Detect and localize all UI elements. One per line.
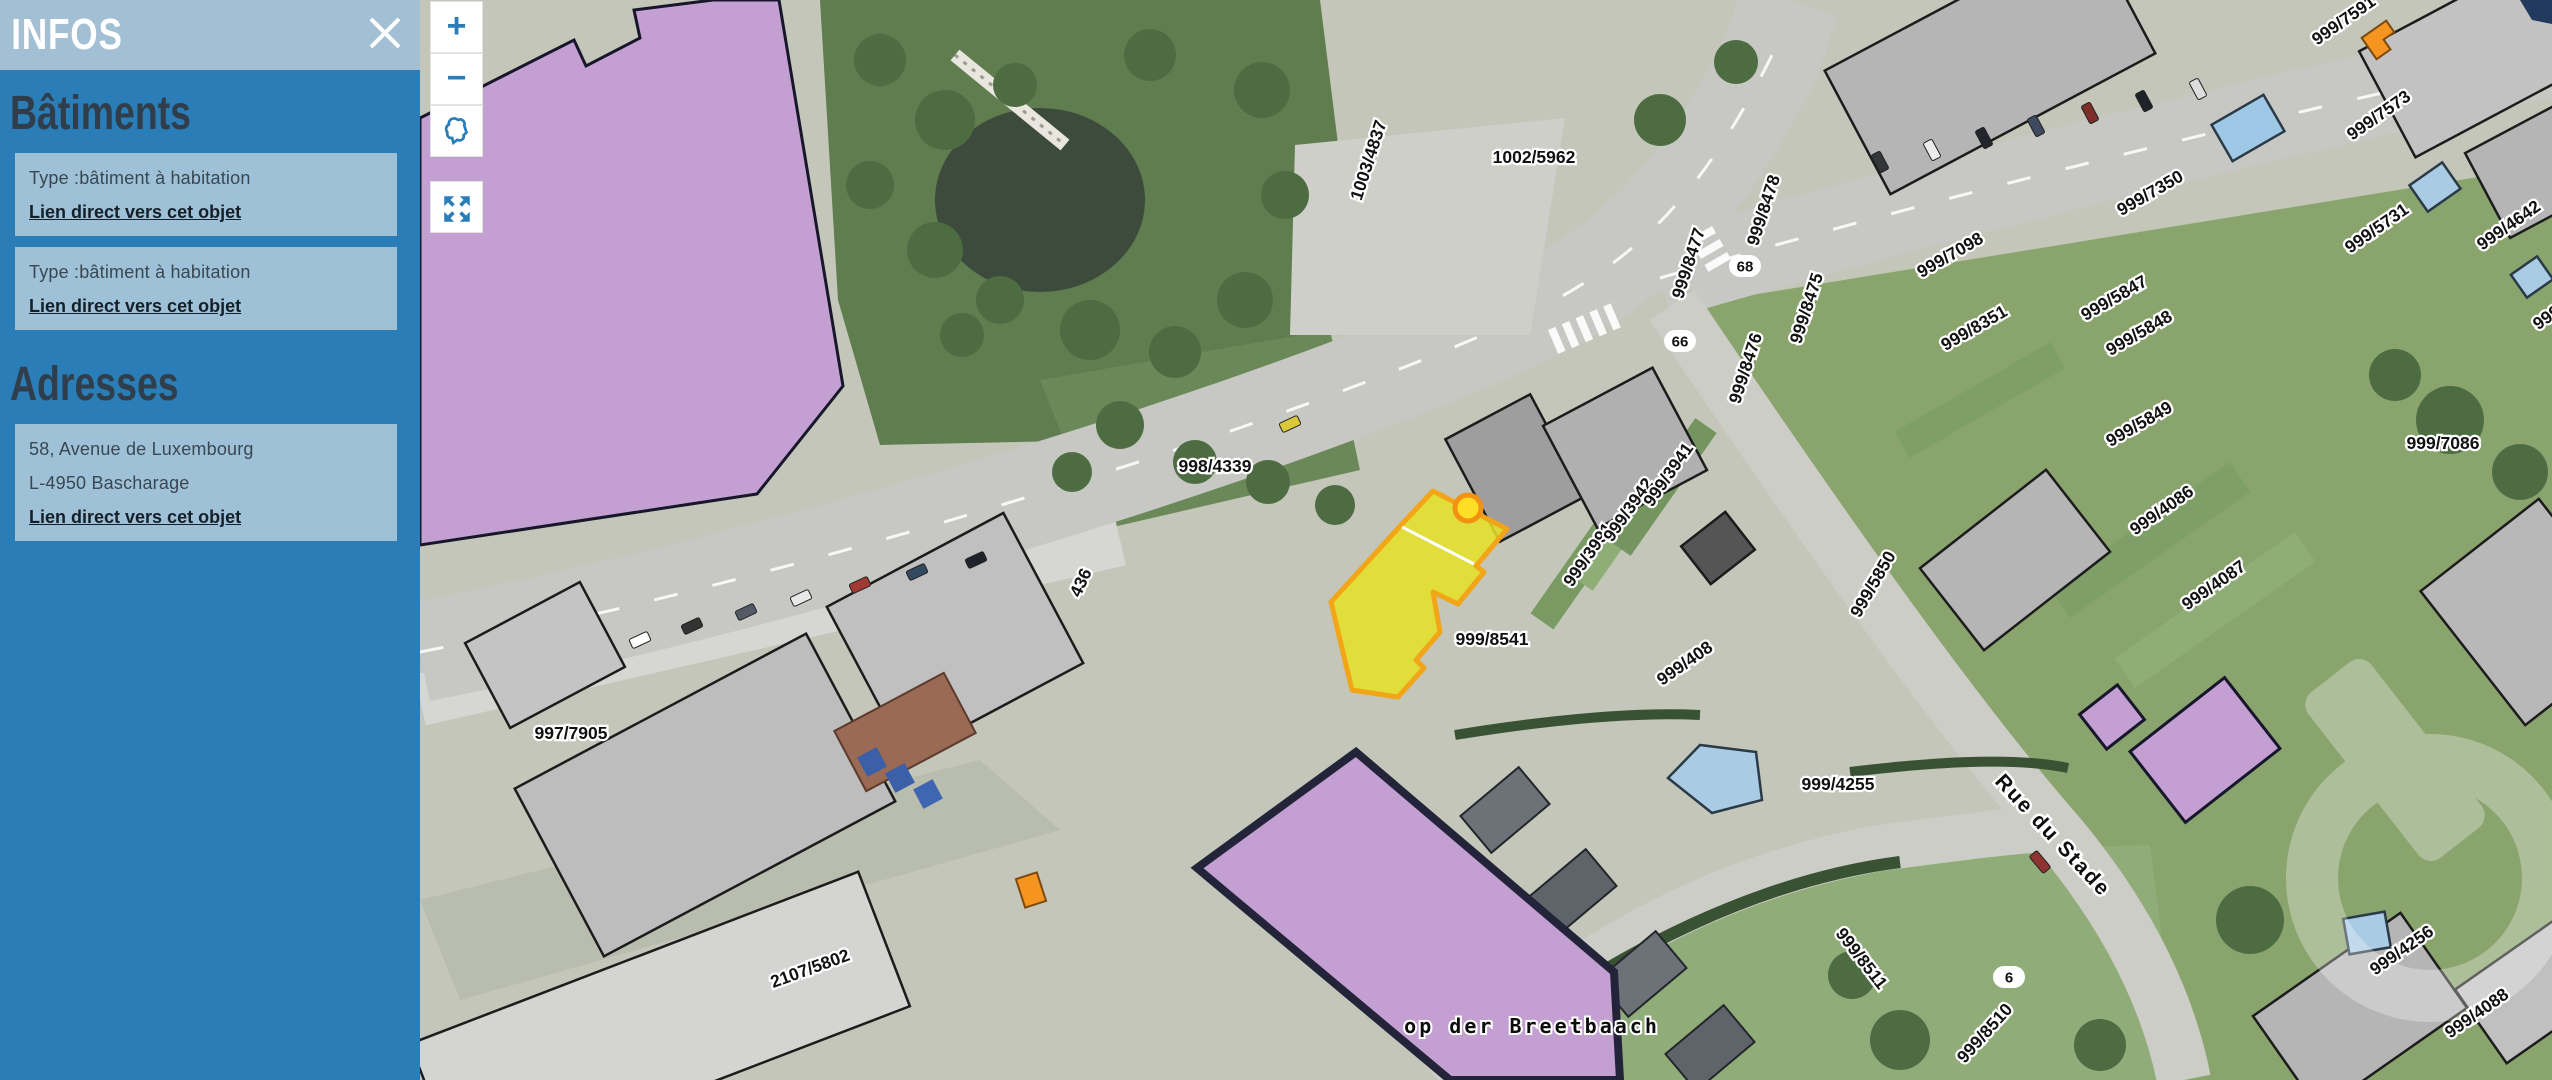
address-street: 58, Avenue de Luxembourg [29, 439, 383, 460]
parcel-label: 999/4255 [1802, 774, 1875, 794]
address-card: 58, Avenue de Luxembourg L-4950 Baschara… [15, 424, 397, 541]
info-panel: INFOS Bâtiments Type :bâtiment à habitat… [0, 0, 420, 1080]
info-panel-body: Bâtiments Type :bâtiment à habitation Li… [0, 70, 420, 541]
svg-text:66: 66 [1672, 334, 1689, 351]
svg-text:68: 68 [1737, 259, 1754, 276]
building-type-text: Type :bâtiment à habitation [29, 168, 383, 189]
fullscreen-icon [440, 192, 474, 226]
zoom-in-button[interactable]: + [430, 1, 483, 53]
parcel-label: 999/8541 [1456, 629, 1529, 649]
address-direct-link[interactable]: Lien direct vers cet objet [29, 507, 241, 528]
building-direct-link[interactable]: Lien direct vers cet objet [29, 202, 241, 223]
section-title-adresses: Adresses [10, 357, 179, 412]
building-type-text: Type :bâtiment à habitation [29, 262, 383, 283]
parcel-label: 998/4339 [1179, 456, 1252, 476]
info-panel-header: INFOS [0, 0, 420, 70]
parcel-label: 997/7905 [535, 723, 608, 743]
zoom-out-button[interactable]: − [430, 53, 483, 105]
house-number-badge: 6 [1993, 966, 2025, 988]
panel-title: INFOS [0, 0, 123, 70]
geoportal-app: { "colors": { "sidebar_bg": "#2a7db6", "… [0, 0, 2552, 1080]
section-title-batiments: Bâtiments [10, 86, 191, 141]
parcel-label: 999/7086 [2407, 433, 2480, 453]
luxembourg-extent-button[interactable] [430, 105, 483, 157]
map-canvas[interactable]: 1003/48371002/5962999/8478999/8477999/84… [420, 0, 2552, 1080]
house-number-badge: 66 [1664, 330, 1696, 352]
parcel-label: 1002/5962 [1493, 147, 1576, 167]
house-number-badge: 68 [1729, 255, 1761, 277]
close-icon[interactable] [366, 14, 404, 52]
building-card: Type :bâtiment à habitation Lien direct … [15, 247, 397, 330]
street-label: op der Breetbaach [1404, 1014, 1660, 1038]
address-city: L-4950 Bascharage [29, 473, 383, 494]
building-direct-link[interactable]: Lien direct vers cet objet [29, 296, 241, 317]
selection-marker [1455, 495, 1481, 521]
svg-text:6: 6 [2005, 970, 2013, 987]
building-card: Type :bâtiment à habitation Lien direct … [15, 153, 397, 236]
fullscreen-button[interactable] [430, 181, 483, 233]
luxembourg-outline-icon [439, 114, 475, 150]
